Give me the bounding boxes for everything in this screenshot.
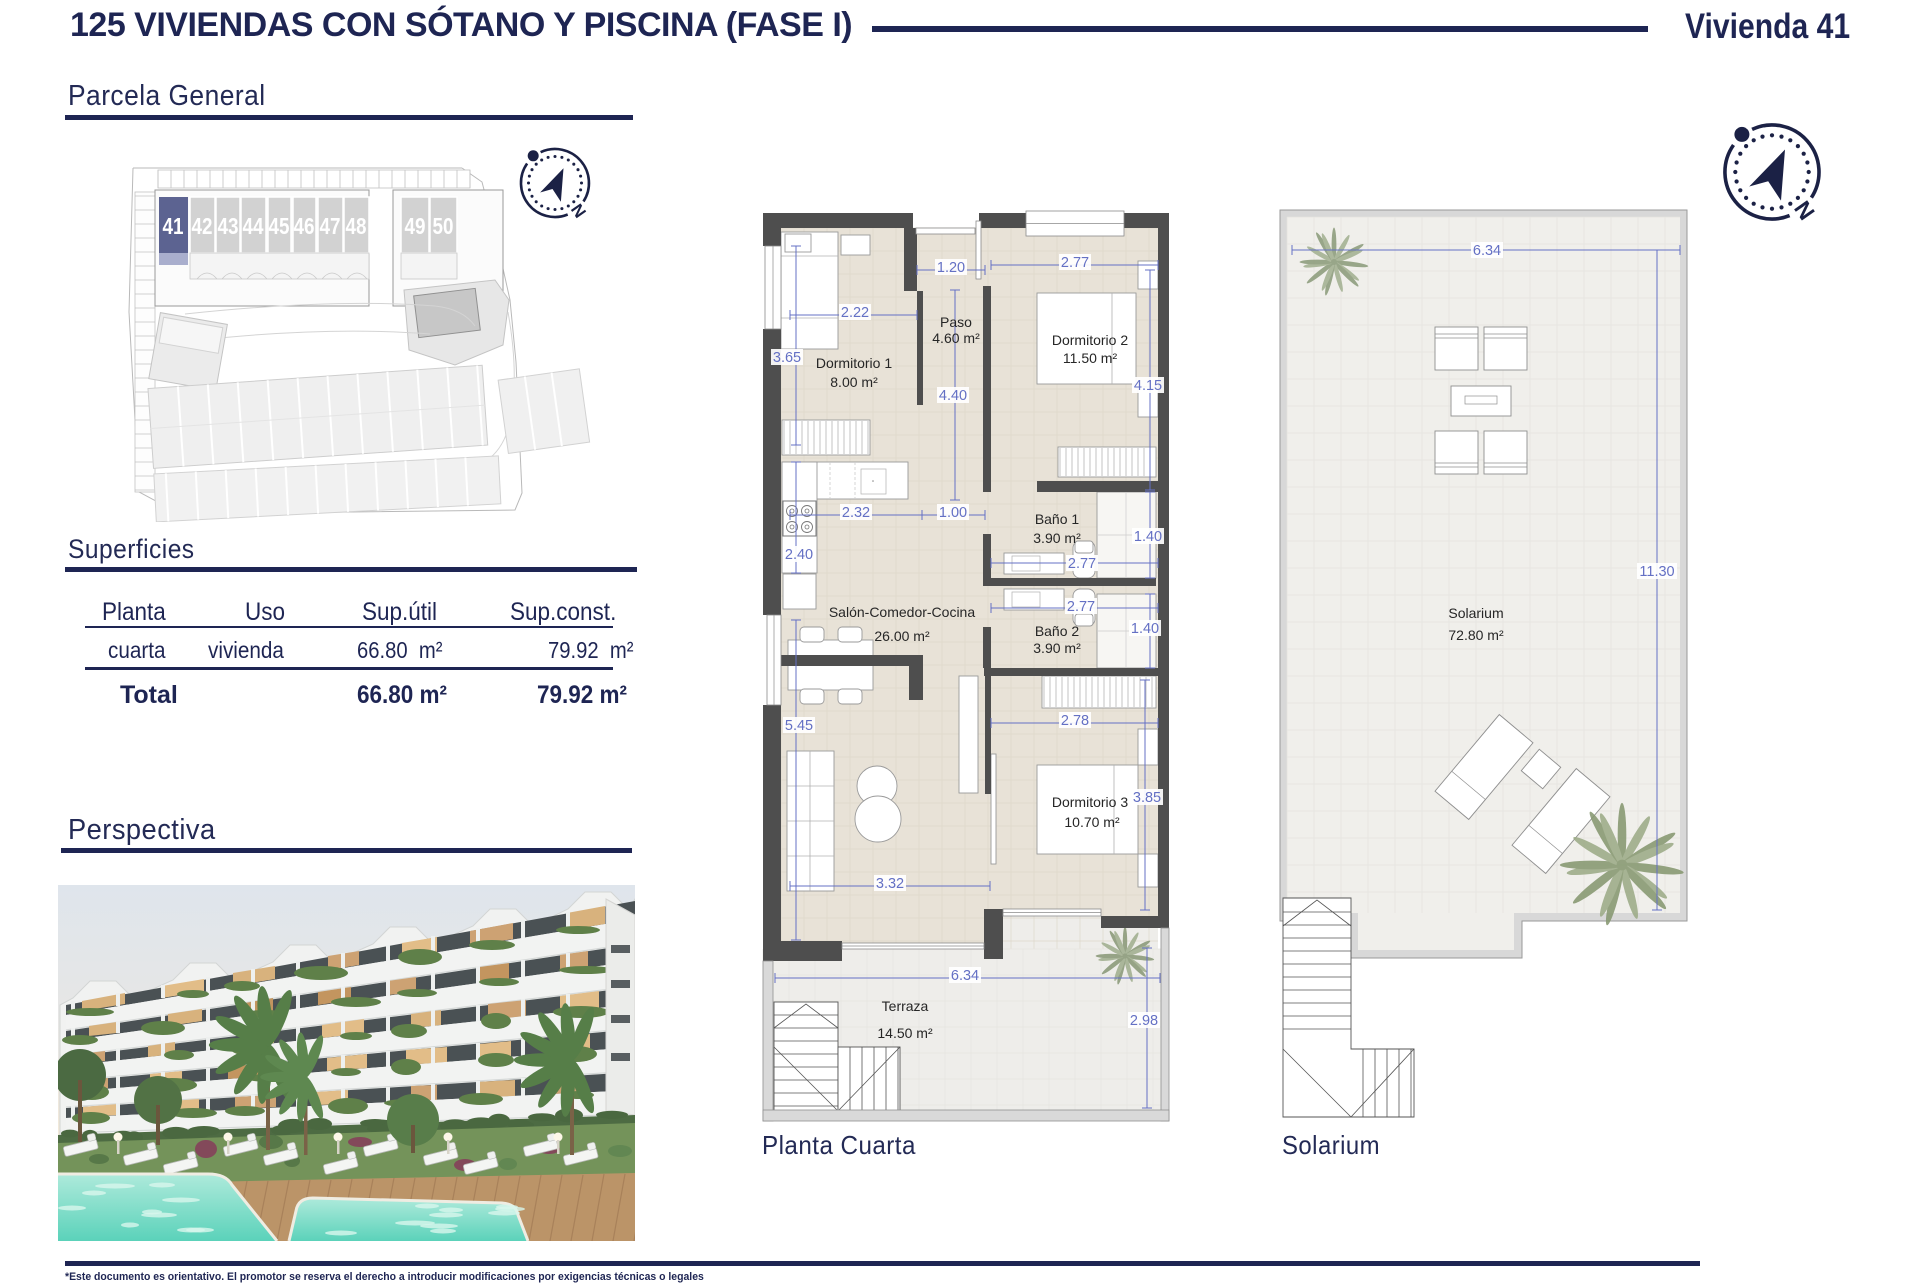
svg-text:47: 47 bbox=[320, 214, 341, 239]
svg-text:Terraza: Terraza bbox=[882, 998, 929, 1014]
svg-text:6.34: 6.34 bbox=[1473, 243, 1501, 259]
svg-text:Solarium: Solarium bbox=[1448, 605, 1503, 621]
svg-text:44: 44 bbox=[243, 214, 264, 239]
svg-text:11.50 m²: 11.50 m² bbox=[1063, 350, 1118, 366]
svg-text:42: 42 bbox=[192, 214, 213, 239]
svg-text:45: 45 bbox=[269, 214, 290, 239]
svg-text:1.40: 1.40 bbox=[1134, 529, 1162, 545]
svg-text:Dormitorio 3: Dormitorio 3 bbox=[1052, 794, 1128, 810]
svg-text:2.77: 2.77 bbox=[1067, 599, 1095, 615]
svg-text:6.34: 6.34 bbox=[951, 968, 979, 984]
svg-text:2.40: 2.40 bbox=[785, 547, 813, 563]
svg-text:50: 50 bbox=[433, 214, 454, 239]
svg-text:46: 46 bbox=[294, 214, 315, 239]
svg-text:14.50 m²: 14.50 m² bbox=[877, 1025, 933, 1041]
svg-text:3.90 m²: 3.90 m² bbox=[1033, 640, 1081, 656]
svg-text:2.98: 2.98 bbox=[1130, 1013, 1158, 1029]
svg-text:5.45: 5.45 bbox=[785, 718, 813, 734]
svg-text:26.00 m²: 26.00 m² bbox=[874, 628, 930, 644]
svg-text:2.77: 2.77 bbox=[1068, 556, 1096, 572]
svg-text:4.40: 4.40 bbox=[939, 388, 967, 404]
svg-text:1.00: 1.00 bbox=[939, 505, 967, 521]
svg-text:2.77: 2.77 bbox=[1061, 255, 1089, 271]
svg-text:1.40: 1.40 bbox=[1131, 621, 1159, 637]
svg-text:4.60 m²: 4.60 m² bbox=[932, 330, 980, 346]
svg-text:Salón-Comedor-Cocina: Salón-Comedor-Cocina bbox=[829, 604, 976, 620]
svg-text:Baño 1: Baño 1 bbox=[1035, 511, 1080, 527]
svg-text:43: 43 bbox=[218, 214, 239, 239]
svg-text:72.80 m²: 72.80 m² bbox=[1448, 627, 1504, 643]
svg-text:N: N bbox=[1789, 196, 1820, 225]
svg-text:1.20: 1.20 bbox=[937, 260, 965, 276]
svg-text:Dormitorio 2: Dormitorio 2 bbox=[1052, 332, 1128, 348]
svg-text:Paso: Paso bbox=[940, 314, 972, 330]
svg-text:3.85: 3.85 bbox=[1133, 790, 1161, 806]
svg-text:3.65: 3.65 bbox=[773, 350, 801, 366]
svg-text:4.15: 4.15 bbox=[1134, 378, 1162, 394]
svg-text:N: N bbox=[567, 201, 590, 222]
svg-text:49: 49 bbox=[405, 214, 426, 239]
svg-text:8.00 m²: 8.00 m² bbox=[830, 374, 878, 390]
svg-text:48: 48 bbox=[346, 214, 367, 239]
svg-text:2.78: 2.78 bbox=[1061, 713, 1089, 729]
svg-text:Dormitorio 1: Dormitorio 1 bbox=[816, 355, 892, 371]
svg-text:41: 41 bbox=[163, 214, 184, 239]
svg-text:Baño 2: Baño 2 bbox=[1035, 623, 1080, 639]
svg-text:11.30: 11.30 bbox=[1639, 564, 1674, 580]
svg-text:2.22: 2.22 bbox=[841, 305, 869, 321]
svg-text:3.90 m²: 3.90 m² bbox=[1033, 530, 1081, 546]
svg-text:2.32: 2.32 bbox=[842, 505, 870, 521]
svg-text:10.70 m²: 10.70 m² bbox=[1064, 814, 1120, 830]
svg-text:3.32: 3.32 bbox=[876, 876, 904, 892]
